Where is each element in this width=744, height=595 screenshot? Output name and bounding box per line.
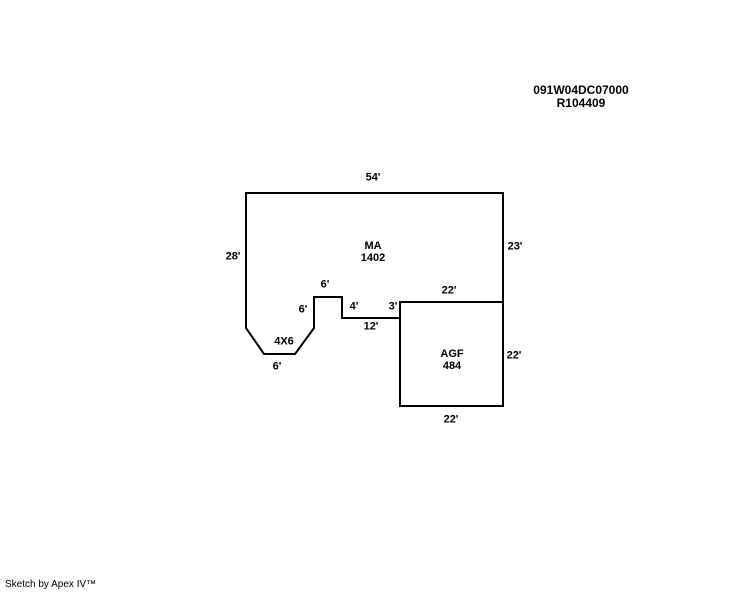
dim-agf-bottom: 22' (444, 415, 459, 426)
dim-ma-right: 23' (508, 242, 523, 253)
agf-label: AGF 484 (440, 348, 463, 372)
dim-notch-top: 6' (321, 280, 330, 291)
dim-bay: 4X6 (274, 337, 294, 348)
dim-notch-right: 4' (350, 302, 359, 313)
ma-code: MA (361, 240, 385, 252)
dim-shared-top: 22' (442, 286, 457, 297)
dim-bay-bottom: 6' (273, 362, 282, 373)
dim-step: 3' (389, 302, 398, 313)
ma-label: MA 1402 (361, 240, 385, 264)
floorplan-svg (0, 0, 744, 595)
agf-code: AGF (440, 348, 463, 360)
dim-bottom-run: 12' (364, 322, 379, 333)
apex-credit: Sketch by Apex IV™ (5, 579, 96, 590)
dim-ma-left: 28' (226, 252, 241, 263)
ma-area: 1402 (361, 252, 385, 264)
agf-area: 484 (440, 360, 463, 372)
dim-notch-left: 6' (299, 305, 308, 316)
sketch-canvas: 091W04DC07000 R104409 54' 28' 23' 22' 3'… (0, 0, 744, 595)
dim-agf-right: 22' (507, 351, 522, 362)
dim-ma-top: 54' (366, 173, 381, 184)
